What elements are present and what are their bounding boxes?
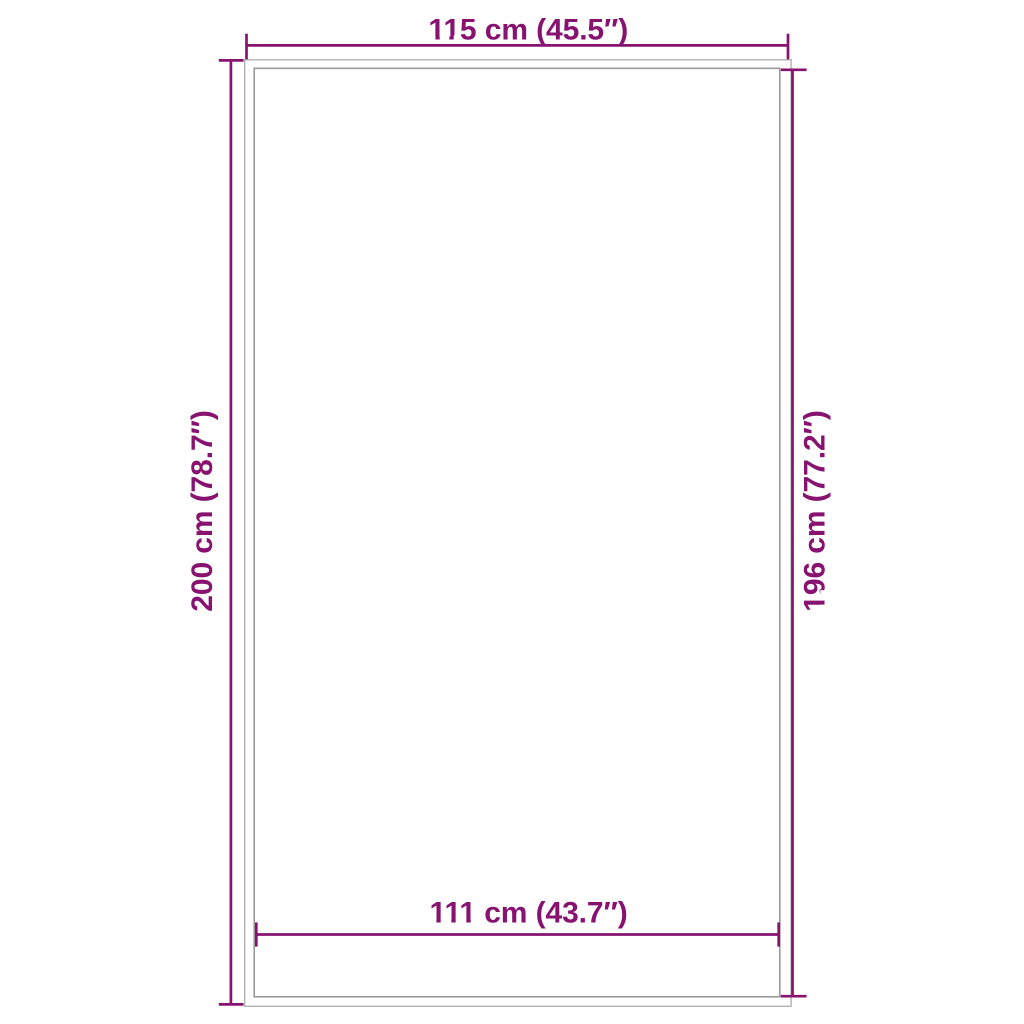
svg-text:115 cm (45.5″): 115 cm (45.5″) [428,13,628,46]
svg-text:111 cm (43.7″): 111 cm (43.7″) [430,896,628,929]
svg-text:200 cm (78.7″): 200 cm (78.7″) [186,410,219,611]
svg-text:196 cm (77.2″): 196 cm (77.2″) [798,410,831,611]
